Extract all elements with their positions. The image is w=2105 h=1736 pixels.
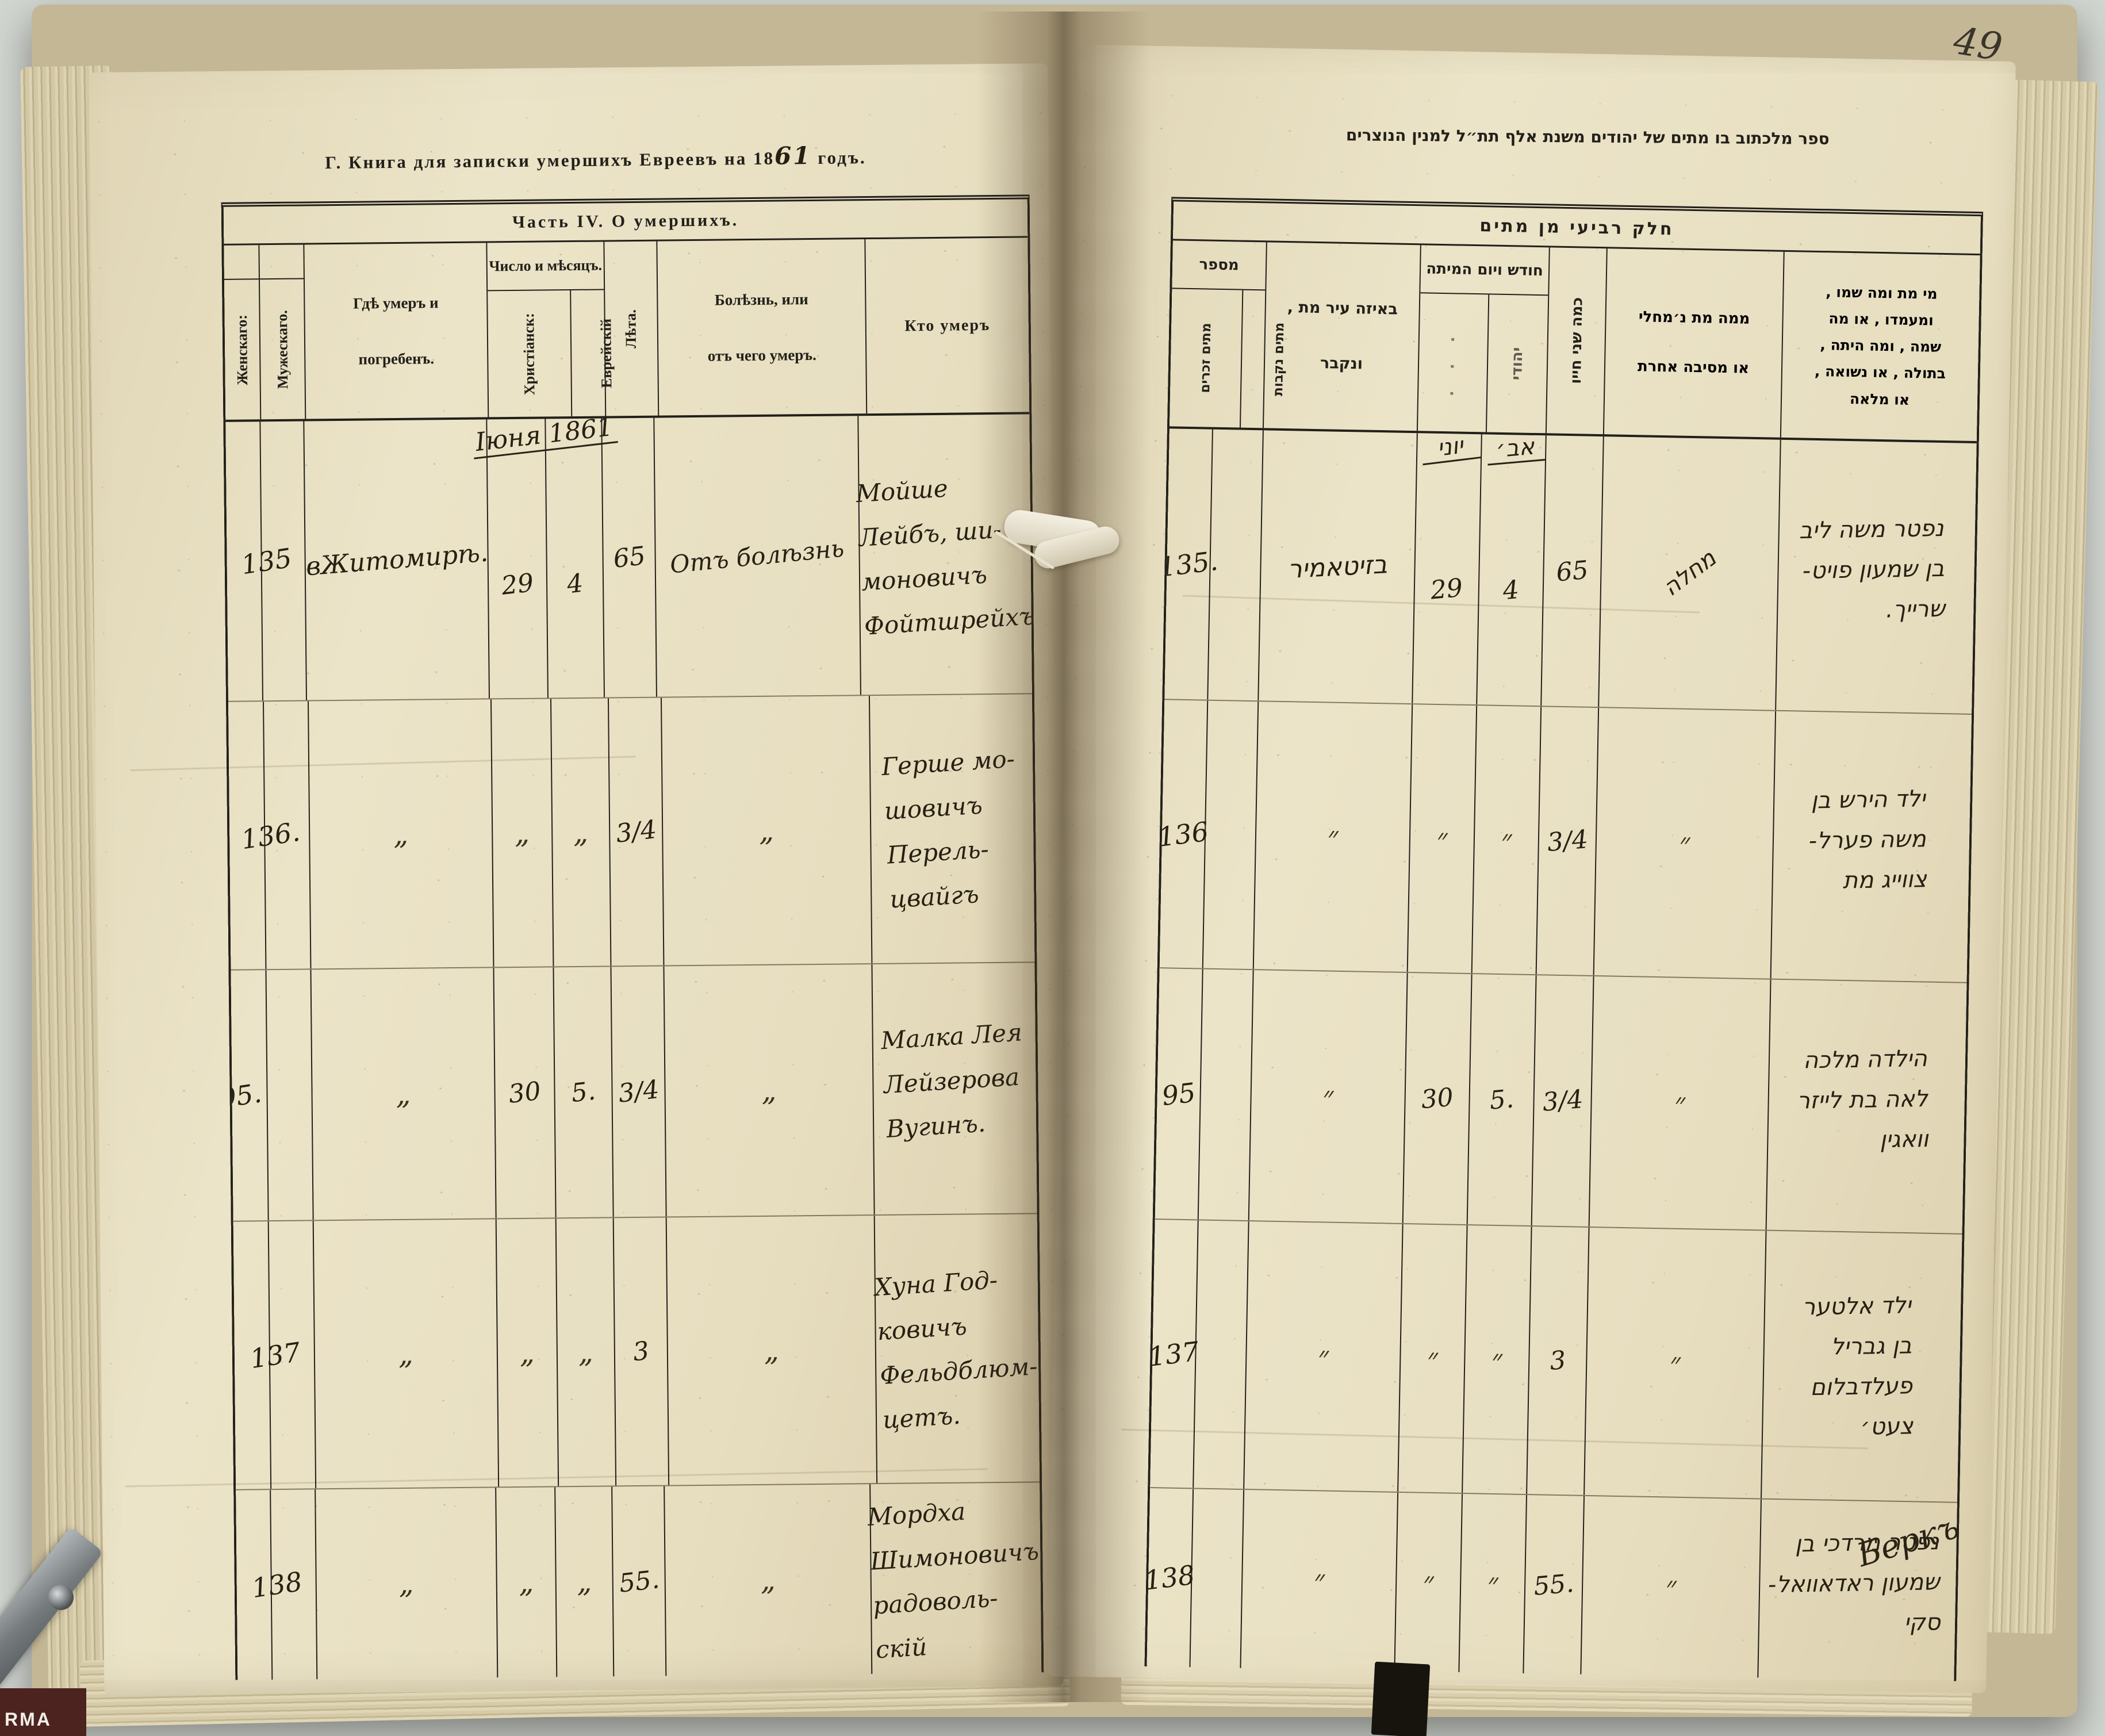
column-number-males: מתים זכרים — [1170, 289, 1243, 428]
place-value: „ — [393, 817, 408, 850]
title-suffix: годъ. — [811, 147, 866, 168]
column-number-group: מספר מתים זכרים מתים נקבות — [1170, 240, 1267, 428]
age-value: 3/4 — [1546, 825, 1589, 857]
table-row: 135 вЖитомирѣ. 29 4 65 Отъ болѣзнь Мойше… — [225, 414, 1032, 702]
table-row: 95. „ 30 5. 3/4 „ Малка Лея Лейзерова Ву… — [231, 963, 1037, 1221]
column-number-label: מספר — [1172, 240, 1266, 290]
name-value: ילד הירש בן משה פערל- צווייג מת — [1808, 785, 1935, 909]
entry-number: 136 — [1156, 815, 1210, 852]
date-right-value: 5. — [1489, 1084, 1515, 1115]
table-row: 138 ״ ״ ״ 55. ״ נפטר מרדכי בן שמעון ראדא… — [1147, 1488, 1957, 1681]
column-date-group: Число и мѣсяцъ. Христіанск: Еврейскій — [487, 242, 606, 417]
column-age-hebrew: כמה שני חייו — [1547, 247, 1608, 434]
header-rule — [224, 245, 259, 279]
table-row: 136 ״ ״ ״ 3/4 ״ ילד הירש בן משה פערל- צו… — [1160, 700, 1972, 983]
column-date-group-label: Число и мѣсяцъ. — [487, 242, 604, 292]
column-female-label: Женскаго: — [233, 314, 251, 385]
date-christian-value: „ — [519, 1566, 534, 1599]
table-row: 135. בזיטאמיר 29 4 65 מחלה נפטר משה ליב … — [1164, 428, 1976, 715]
column-where-line2: ונקבר — [1286, 354, 1397, 374]
column-date-sub-left-label: · · · — [1444, 329, 1462, 397]
date-right-value: ״ — [1487, 1567, 1498, 1600]
date-left-value: ״ — [1422, 1566, 1434, 1599]
column-years-label: Лѣта. — [622, 309, 640, 348]
entry-number: 138 — [250, 1566, 304, 1604]
place-value: „ — [396, 1077, 411, 1110]
table-row: 95 ״ 30 5. 3/4 ״ הילדה מלכה לאה בת לייזר… — [1155, 968, 1967, 1235]
column-female: Женскаго: — [224, 245, 261, 419]
place-value: ״ — [1322, 1080, 1334, 1113]
table-row: 137 „ „ „ 3 „ Хуна Год- ковичъ Фельдблюм… — [233, 1214, 1040, 1490]
left-table-body: Іюня 1861 135 вЖитомирѣ. 29 4 65 Отъ бол… — [225, 414, 1041, 1680]
column-cause-hebrew: ממה מת נ׳מחלי או מסיבה אחרת — [1604, 248, 1785, 438]
month-annotation-right: אב׳ — [1485, 432, 1545, 465]
title-year-handwritten: 61 — [774, 141, 812, 170]
column-illness-line2: отъ чего умеръ. — [708, 346, 816, 365]
date-left-value: ״ — [1427, 1342, 1438, 1375]
name-value: Мордха Шимоновичъ радоволь- скій — [867, 1493, 1044, 1664]
date-jewish-value: „ — [578, 1335, 593, 1369]
column-number-males-label: מתים זכרים — [1198, 323, 1214, 393]
column-date-christian-label: Христіанск: — [520, 313, 538, 395]
place-value: „ — [398, 1567, 413, 1600]
place-value: вЖитомирѣ. — [305, 538, 489, 581]
name-value: Герше мо- шовичъ Перель- цвайгъ — [881, 744, 1024, 913]
column-date-sub-right-label: יהודי — [1508, 347, 1526, 381]
bookmark-ribbon — [1371, 1662, 1431, 1736]
date-christian-value: „ — [520, 1336, 535, 1369]
right-page: ספר מלכתוב בו מתים של יהודים משנת אלף תת… — [1048, 44, 2016, 1693]
column-date-christian: Христіанск: — [488, 290, 572, 417]
illness-value: „ — [761, 1563, 776, 1597]
column-cause-line2: או מסיבה אחרת — [1638, 358, 1750, 378]
entry-number: 138 — [1144, 1559, 1197, 1596]
age-value: 3/4 — [614, 815, 658, 849]
column-years: Лѣта. — [604, 242, 659, 416]
column-where-line1: Гдѣ умеръ и — [353, 293, 439, 313]
place-value: ״ — [1313, 1563, 1325, 1597]
date-jewish-value: „ — [577, 1565, 592, 1599]
column-date-group-label: חודש ויום המיתה — [1420, 245, 1549, 296]
illness-value: „ — [764, 1333, 779, 1367]
name-value: ילד אלטער בן גבריל פעלדבלום צעט׳ — [1802, 1292, 1921, 1441]
column-where-line2: погребенъ. — [354, 349, 439, 369]
cause-value: ״ — [1674, 1086, 1686, 1120]
left-table-header: Женскаго: Мужескаго. Гдѣ умеръ и погребе… — [224, 238, 1029, 422]
illness-value: „ — [761, 1074, 776, 1107]
place-value: ״ — [1317, 1340, 1329, 1373]
cause-value: ״ — [1665, 1570, 1677, 1603]
place-value: ״ — [1327, 820, 1339, 853]
corner-label-text: RMA — [5, 1709, 52, 1730]
page-title: Г. Книга для записки умершихъ Евреевъ на… — [256, 140, 935, 175]
entry-number: 95. — [221, 1077, 264, 1114]
column-who-hebrew: מי מת ומה שמו , ומעמדו , או מה שמה , ומה… — [1781, 252, 1980, 442]
column-illness-line1: Болѣзнь, или — [707, 290, 816, 309]
table-row: 138 „ „ „ 55. „ Мордха Шимоновичъ радово… — [236, 1482, 1041, 1680]
column-who-label: Кто умеръ — [904, 316, 990, 335]
entry-number: 95 — [1160, 1076, 1197, 1112]
date-left-value: 30 — [1420, 1083, 1455, 1115]
header-rule — [259, 245, 304, 280]
right-table-body: יוני אב׳ 135. בזיטאמיר 29 4 65 מחלה נפטר… — [1147, 428, 1976, 1681]
date-right-value: 4 — [1502, 575, 1520, 606]
age-value: 3 — [631, 1336, 651, 1367]
column-male: Мужескаго. — [259, 245, 306, 420]
page-title-hebrew: ספר מלכתוב בו מתים של יהודים משנת אלף תת… — [1300, 125, 1875, 149]
cause-value: ״ — [1669, 1346, 1681, 1379]
corner-label: RMA — [0, 1688, 86, 1736]
name-value: נפטר משה ליב בן שמעון פויט- שרייך. — [1799, 515, 1954, 638]
name-value: הילדה מלכה לאה בת לייזר וואגין — [1796, 1045, 1937, 1168]
date-right-value: ״ — [1491, 1343, 1502, 1376]
illness-value: „ — [759, 814, 774, 847]
date-jewish-value: 5. — [570, 1076, 597, 1108]
column-male-label: Мужескаго. — [273, 310, 291, 389]
cause-value: ״ — [1679, 826, 1690, 860]
age-value: 65 — [611, 541, 646, 574]
place-value: „ — [398, 1337, 413, 1370]
column-where: Гдѣ умеръ и погребенъ. — [304, 243, 489, 419]
table-row: 136. „ „ „ 3/4 „ Герше мо- шовичъ Перель… — [228, 694, 1034, 970]
table-row: 137 ״ ״ ״ 3 ״ ילד אלטער בן גבריל פעלדבלו… — [1150, 1220, 1962, 1503]
date-christian-value: 30 — [507, 1076, 542, 1109]
clasp-rivet — [48, 1585, 74, 1610]
age-value: 55. — [1532, 1568, 1575, 1601]
age-value: 65 — [1555, 555, 1589, 587]
column-age-label: כמה שני חייו — [1567, 297, 1586, 384]
column-date-sub-left: · · · — [1418, 293, 1489, 432]
date-christian-value: „ — [515, 816, 530, 849]
column-illness: Болѣзнь, или отъ чего умеръ. — [657, 239, 867, 415]
binding-string — [994, 493, 1132, 585]
left-register-table: Часть IV. О умершихъ. Женскаго: Мужескаг… — [221, 194, 1044, 1680]
column-cause-line1: ממה מת נ׳מחלי — [1638, 309, 1750, 328]
column-date-sub-right: יהודי — [1487, 294, 1548, 433]
column-date-group-hebrew: חודש ויום המיתה · · · יהודי — [1418, 245, 1550, 433]
date-jewish-value: 4 — [566, 569, 585, 600]
date-jewish-value: „ — [573, 815, 588, 849]
illness-value: Отъ болѣзнь — [669, 534, 845, 578]
name-value: Малка Лея Лейзерова Вугинъ. — [880, 1018, 1030, 1159]
column-where-line1: באיזה עיר מת , — [1287, 298, 1398, 319]
date-right-value: ״ — [1501, 823, 1512, 857]
name-value: Хуна Год- ковичъ Фельдблюм- цетъ. — [873, 1263, 1041, 1434]
entry-number: 137 — [1147, 1335, 1201, 1372]
date-christian-value: 29 — [500, 568, 535, 601]
folio-number: 49 — [1950, 18, 2005, 70]
column-who: Кто умеръ — [865, 238, 1029, 413]
right-register-table: חלק רביעי מן מתים מספר מתים זכרים מתים נ… — [1144, 197, 1983, 1681]
title-prefix: Г. Книга для записки умершихъ Евреевъ на… — [325, 148, 774, 173]
age-value: 3/4 — [616, 1075, 660, 1109]
place-value: בזיטאמיר — [1287, 550, 1388, 584]
date-left-value: 29 — [1429, 573, 1464, 605]
cause-value: מחלה — [1658, 545, 1721, 601]
date-left-value: ״ — [1436, 822, 1448, 855]
left-page: Г. Книга для записки умершихъ Евреевъ на… — [89, 63, 1063, 1695]
age-value: 3 — [1548, 1346, 1567, 1376]
age-value: 3/4 — [1541, 1084, 1584, 1117]
column-where-hebrew: באיזה עיר מת , ונקבר — [1264, 242, 1421, 431]
age-value: 55. — [618, 1565, 661, 1599]
right-table-header: מספר מתים זכרים מתים נקבות באיזה עיר מת … — [1170, 240, 1980, 443]
photo-of-open-register-book: Г. Книга для записки умершихъ Евреевъ на… — [0, 0, 2105, 1736]
